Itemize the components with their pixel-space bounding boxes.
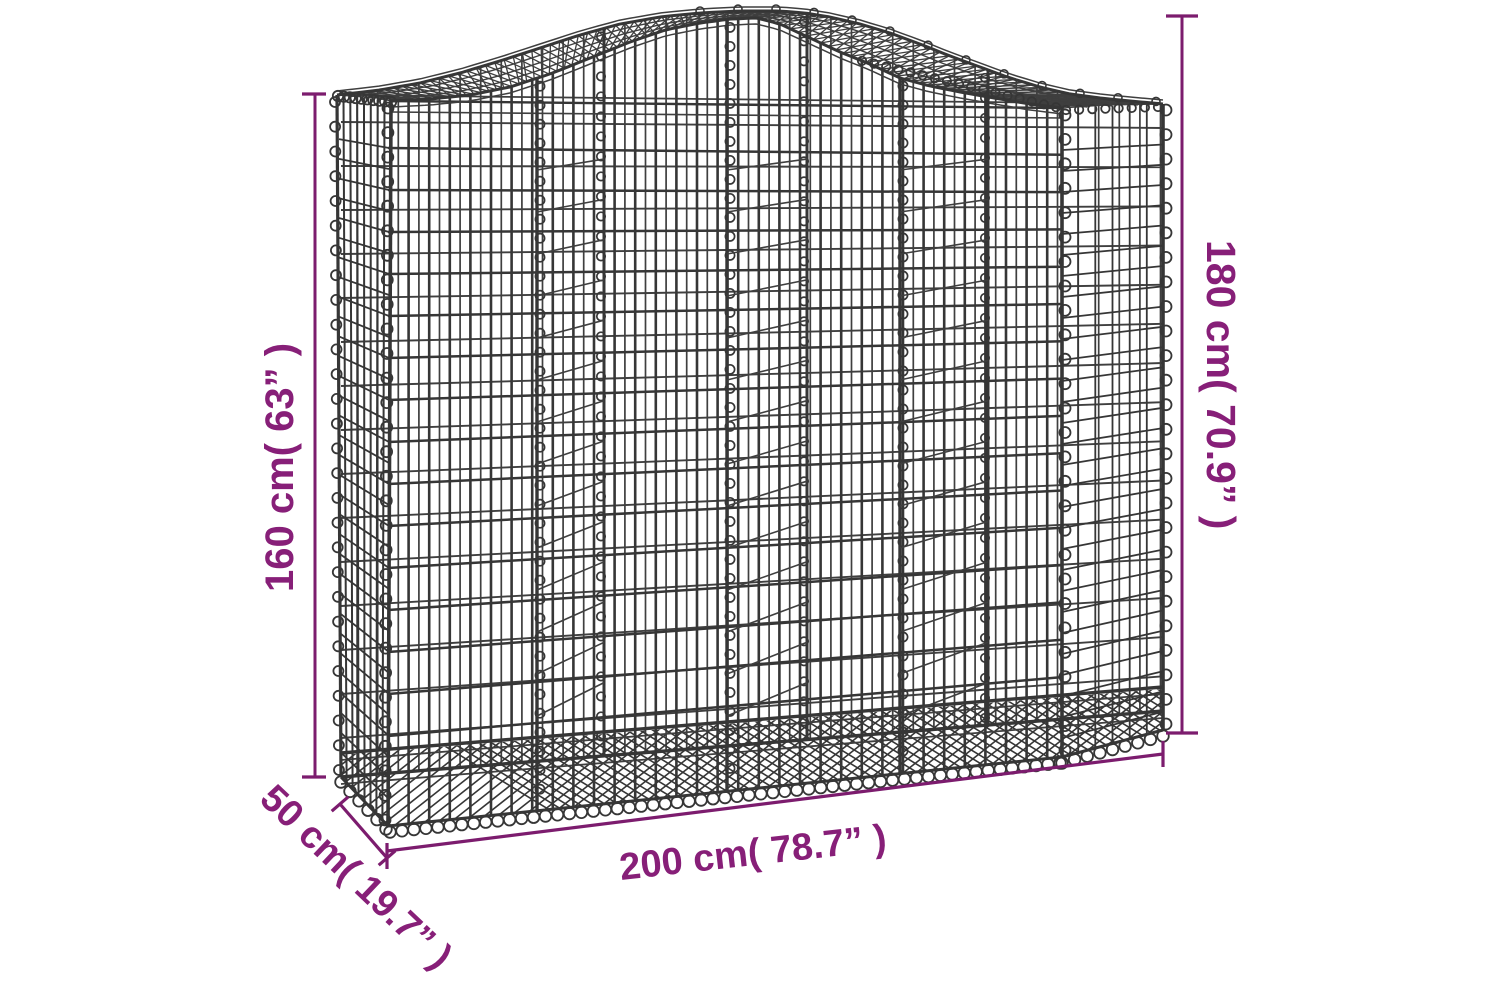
svg-text:180 cm( 70.9” ): 180 cm( 70.9” ) [1198,240,1244,529]
svg-text:160 cm( 63” ): 160 cm( 63” ) [258,343,302,592]
